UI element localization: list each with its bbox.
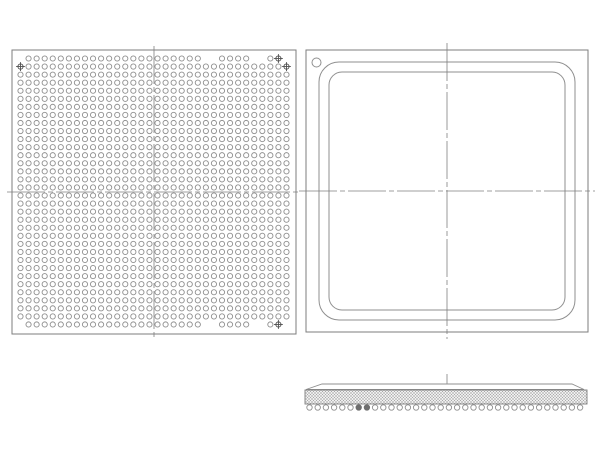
- ball: [50, 322, 55, 327]
- ball: [58, 120, 63, 125]
- ball: [236, 112, 241, 117]
- ball: [147, 56, 152, 61]
- solder-ball: [389, 405, 394, 410]
- ball: [131, 225, 136, 230]
- ball: [107, 120, 112, 125]
- bottom-view: [7, 46, 301, 338]
- ball: [179, 161, 184, 166]
- ball: [187, 72, 192, 77]
- ball: [260, 104, 265, 109]
- ball: [227, 290, 232, 295]
- solder-ball: [315, 405, 320, 410]
- ball: [236, 80, 241, 85]
- ball: [115, 274, 120, 279]
- ball: [163, 282, 168, 287]
- ball: [74, 96, 79, 101]
- ball: [139, 274, 144, 279]
- ball: [74, 104, 79, 109]
- ball: [34, 306, 39, 311]
- ball: [99, 209, 104, 214]
- ball: [268, 161, 273, 166]
- ball: [42, 257, 47, 262]
- ball: [18, 120, 23, 125]
- ball: [179, 80, 184, 85]
- ball: [211, 145, 216, 150]
- ball: [219, 80, 224, 85]
- ball: [211, 306, 216, 311]
- ball: [171, 274, 176, 279]
- ball: [179, 306, 184, 311]
- ball: [147, 257, 152, 262]
- ball: [42, 56, 47, 61]
- ball: [284, 88, 289, 93]
- ball: [163, 257, 168, 262]
- ball: [90, 96, 95, 101]
- ball: [219, 193, 224, 198]
- ball: [219, 88, 224, 93]
- ball: [107, 64, 112, 69]
- ball: [195, 80, 200, 85]
- ball: [99, 120, 104, 125]
- ball: [82, 265, 87, 270]
- solder-ball: [446, 405, 451, 410]
- ball: [163, 314, 168, 319]
- ball: [82, 104, 87, 109]
- ball: [268, 282, 273, 287]
- ball: [163, 265, 168, 270]
- ball: [195, 64, 200, 69]
- ball: [50, 225, 55, 230]
- ball: [18, 112, 23, 117]
- ball: [227, 56, 232, 61]
- ball: [244, 153, 249, 158]
- ball: [82, 64, 87, 69]
- ball: [219, 249, 224, 254]
- ball: [252, 257, 257, 262]
- ball: [18, 161, 23, 166]
- ball: [219, 241, 224, 246]
- ball: [123, 137, 128, 142]
- ball: [195, 185, 200, 190]
- ball: [252, 169, 257, 174]
- ball: [147, 120, 152, 125]
- ball: [74, 64, 79, 69]
- ball: [268, 209, 273, 214]
- ball: [211, 265, 216, 270]
- ball: [58, 185, 63, 190]
- ball: [99, 322, 104, 327]
- ball: [276, 153, 281, 158]
- ball: [163, 298, 168, 303]
- solder-ball: [512, 405, 517, 410]
- ball: [34, 209, 39, 214]
- ball: [107, 96, 112, 101]
- ball: [90, 274, 95, 279]
- ball: [244, 145, 249, 150]
- ball: [58, 257, 63, 262]
- ball: [203, 217, 208, 222]
- ball: [58, 72, 63, 77]
- solder-ball: [487, 405, 492, 410]
- ball: [203, 306, 208, 311]
- ball: [171, 137, 176, 142]
- ball: [227, 120, 232, 125]
- ball: [74, 241, 79, 246]
- ball: [50, 314, 55, 319]
- ball: [147, 177, 152, 182]
- ball: [163, 177, 168, 182]
- ball: [50, 201, 55, 206]
- ball: [50, 233, 55, 238]
- ball: [107, 249, 112, 254]
- ball: [171, 306, 176, 311]
- ball: [34, 112, 39, 117]
- ball: [252, 153, 257, 158]
- ball: [163, 233, 168, 238]
- ball: [82, 72, 87, 77]
- ball: [18, 169, 23, 174]
- ball: [123, 72, 128, 77]
- ball: [123, 298, 128, 303]
- ball: [252, 249, 257, 254]
- ball: [244, 306, 249, 311]
- ball: [163, 56, 168, 61]
- ball: [155, 249, 160, 254]
- ball: [260, 169, 265, 174]
- substrate-hatch-band: [305, 390, 587, 404]
- ball: [26, 177, 31, 182]
- ball: [276, 257, 281, 262]
- ball: [58, 233, 63, 238]
- ball: [147, 185, 152, 190]
- ball: [276, 217, 281, 222]
- ball: [34, 153, 39, 158]
- ball: [284, 72, 289, 77]
- ball: [195, 128, 200, 133]
- ball: [90, 290, 95, 295]
- ball: [147, 298, 152, 303]
- solder-ball: [381, 405, 386, 410]
- ball: [131, 233, 136, 238]
- ball: [236, 282, 241, 287]
- ball: [66, 169, 71, 174]
- ball: [227, 209, 232, 214]
- ball: [26, 298, 31, 303]
- ball: [268, 314, 273, 319]
- ball: [131, 185, 136, 190]
- ball: [219, 290, 224, 295]
- ball: [99, 112, 104, 117]
- ball: [123, 104, 128, 109]
- ball: [236, 265, 241, 270]
- ball: [252, 128, 257, 133]
- ball: [219, 306, 224, 311]
- ball: [58, 96, 63, 101]
- ball: [236, 306, 241, 311]
- ball: [66, 265, 71, 270]
- ball: [90, 298, 95, 303]
- ball: [171, 112, 176, 117]
- ball: [42, 241, 47, 246]
- ball: [163, 193, 168, 198]
- ball: [236, 177, 241, 182]
- ball: [284, 128, 289, 133]
- ball: [99, 161, 104, 166]
- ball: [74, 225, 79, 230]
- ball: [155, 233, 160, 238]
- ball: [284, 217, 289, 222]
- ball: [244, 185, 249, 190]
- ball: [115, 96, 120, 101]
- ball: [244, 169, 249, 174]
- ball: [58, 88, 63, 93]
- ball: [227, 64, 232, 69]
- ball: [82, 169, 87, 174]
- ball: [123, 209, 128, 214]
- ball: [50, 80, 55, 85]
- ball: [90, 201, 95, 206]
- ball: [131, 161, 136, 166]
- ball: [187, 233, 192, 238]
- ball: [227, 322, 232, 327]
- ball: [82, 112, 87, 117]
- ball: [252, 241, 257, 246]
- ball: [147, 153, 152, 158]
- ball: [163, 161, 168, 166]
- ball: [42, 169, 47, 174]
- ball: [276, 64, 281, 69]
- ball: [42, 185, 47, 190]
- ball: [139, 290, 144, 295]
- ball: [58, 145, 63, 150]
- ball: [66, 137, 71, 142]
- ball: [268, 225, 273, 230]
- ball: [284, 225, 289, 230]
- ball: [131, 153, 136, 158]
- ball: [139, 104, 144, 109]
- ball: [131, 201, 136, 206]
- ball: [284, 201, 289, 206]
- ball: [155, 306, 160, 311]
- ball: [131, 322, 136, 327]
- ball: [268, 128, 273, 133]
- ball: [26, 145, 31, 150]
- ball: [252, 88, 257, 93]
- ball: [284, 241, 289, 246]
- ball: [147, 137, 152, 142]
- ball: [260, 112, 265, 117]
- ball: [34, 225, 39, 230]
- ball: [90, 193, 95, 198]
- ball: [115, 120, 120, 125]
- ball: [195, 322, 200, 327]
- ball: [268, 233, 273, 238]
- ball: [107, 80, 112, 85]
- ball: [219, 112, 224, 117]
- ball: [115, 88, 120, 93]
- ball: [211, 64, 216, 69]
- ball: [171, 80, 176, 85]
- ball: [195, 120, 200, 125]
- ball: [171, 128, 176, 133]
- ball: [252, 145, 257, 150]
- solder-ball: [454, 405, 459, 410]
- ball: [268, 217, 273, 222]
- ball: [171, 322, 176, 327]
- ball: [163, 241, 168, 246]
- ball: [115, 128, 120, 133]
- ball: [147, 104, 152, 109]
- ball: [34, 257, 39, 262]
- ball: [187, 177, 192, 182]
- solder-ball: [405, 405, 410, 410]
- ball: [42, 201, 47, 206]
- ball: [50, 88, 55, 93]
- ball: [34, 322, 39, 327]
- ball: [244, 282, 249, 287]
- ball: [90, 306, 95, 311]
- package-drawing-canvas: [0, 0, 600, 474]
- ball: [82, 161, 87, 166]
- ball: [163, 225, 168, 230]
- ball: [107, 225, 112, 230]
- ball: [42, 112, 47, 117]
- ball: [18, 225, 23, 230]
- ball: [147, 322, 152, 327]
- ball: [187, 80, 192, 85]
- ball: [131, 290, 136, 295]
- ball: [66, 193, 71, 198]
- ball: [58, 249, 63, 254]
- ball: [74, 72, 79, 77]
- ball: [276, 298, 281, 303]
- ball: [203, 201, 208, 206]
- ball: [260, 257, 265, 262]
- ball: [34, 56, 39, 61]
- ball: [58, 282, 63, 287]
- ball: [155, 257, 160, 262]
- ball: [147, 161, 152, 166]
- ball: [195, 104, 200, 109]
- ball: [115, 249, 120, 254]
- ball: [147, 145, 152, 150]
- ball: [252, 104, 257, 109]
- ball: [131, 112, 136, 117]
- ball: [139, 201, 144, 206]
- ball: [227, 72, 232, 77]
- ball: [99, 177, 104, 182]
- ball: [227, 145, 232, 150]
- ball: [90, 112, 95, 117]
- ball: [260, 185, 265, 190]
- ball: [179, 56, 184, 61]
- ball: [131, 241, 136, 246]
- ball: [139, 128, 144, 133]
- ball: [18, 209, 23, 214]
- ball: [179, 104, 184, 109]
- ball: [42, 153, 47, 158]
- ball: [260, 161, 265, 166]
- ball: [244, 161, 249, 166]
- ball: [90, 217, 95, 222]
- ball: [227, 306, 232, 311]
- ball: [187, 249, 192, 254]
- ball: [284, 265, 289, 270]
- ball: [107, 112, 112, 117]
- ball: [227, 282, 232, 287]
- package-drawing-page: [0, 0, 600, 474]
- ball: [236, 201, 241, 206]
- ball: [115, 265, 120, 270]
- ball: [260, 88, 265, 93]
- ball: [74, 177, 79, 182]
- ball: [74, 80, 79, 85]
- ball: [187, 120, 192, 125]
- ball: [74, 217, 79, 222]
- ball: [276, 169, 281, 174]
- ball: [82, 96, 87, 101]
- ball: [66, 314, 71, 319]
- ball: [195, 225, 200, 230]
- ball: [203, 112, 208, 117]
- ball: [260, 265, 265, 270]
- ball: [50, 137, 55, 142]
- ball: [227, 201, 232, 206]
- ball: [195, 282, 200, 287]
- ball: [155, 290, 160, 295]
- ball: [171, 56, 176, 61]
- ball: [66, 209, 71, 214]
- ball: [99, 56, 104, 61]
- ball: [115, 282, 120, 287]
- ball: [90, 104, 95, 109]
- solder-ball: [569, 405, 574, 410]
- ball: [227, 298, 232, 303]
- ball: [187, 201, 192, 206]
- solder-ball: [536, 405, 541, 410]
- solder-ball: [307, 405, 312, 410]
- ball: [26, 282, 31, 287]
- ball: [123, 161, 128, 166]
- ball: [18, 128, 23, 133]
- ball: [163, 169, 168, 174]
- solder-ball: [479, 405, 484, 410]
- ball: [203, 185, 208, 190]
- ball: [219, 265, 224, 270]
- ball: [147, 274, 152, 279]
- ball: [139, 72, 144, 77]
- ball: [236, 322, 241, 327]
- ball: [244, 265, 249, 270]
- ball: [58, 201, 63, 206]
- ball: [195, 56, 200, 61]
- ball: [50, 177, 55, 182]
- ball: [163, 112, 168, 117]
- ball: [115, 177, 120, 182]
- ball: [195, 249, 200, 254]
- ball: [268, 169, 273, 174]
- ball: [50, 96, 55, 101]
- ball: [58, 137, 63, 142]
- ball: [268, 96, 273, 101]
- ball: [82, 322, 87, 327]
- ball: [244, 257, 249, 262]
- ball: [171, 217, 176, 222]
- ball: [203, 314, 208, 319]
- ball: [66, 72, 71, 77]
- ball: [107, 274, 112, 279]
- ball: [147, 80, 152, 85]
